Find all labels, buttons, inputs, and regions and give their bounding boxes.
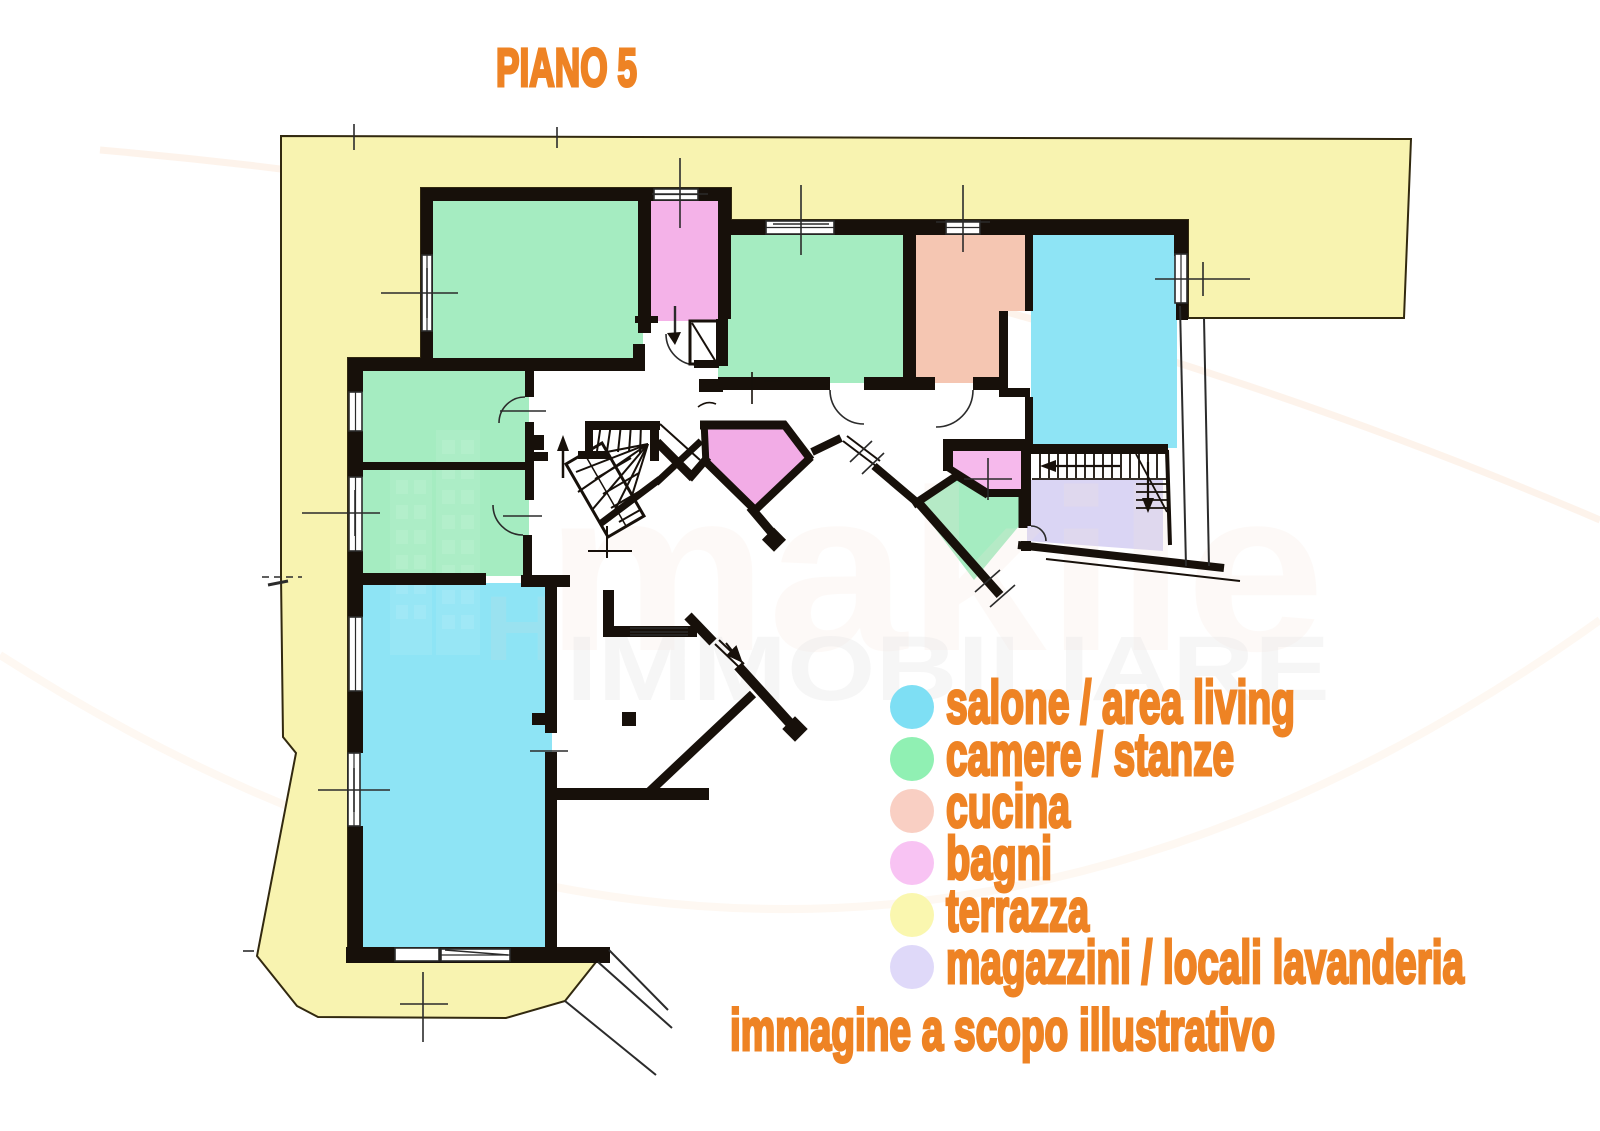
svg-text:PIANO 5: PIANO 5 [496,38,637,98]
svg-text:immagine a scopo illustrativo: immagine a scopo illustrativo [730,998,1275,1063]
svg-text:magazzini / locali lavanderia: magazzini / locali lavanderia [946,929,1464,996]
